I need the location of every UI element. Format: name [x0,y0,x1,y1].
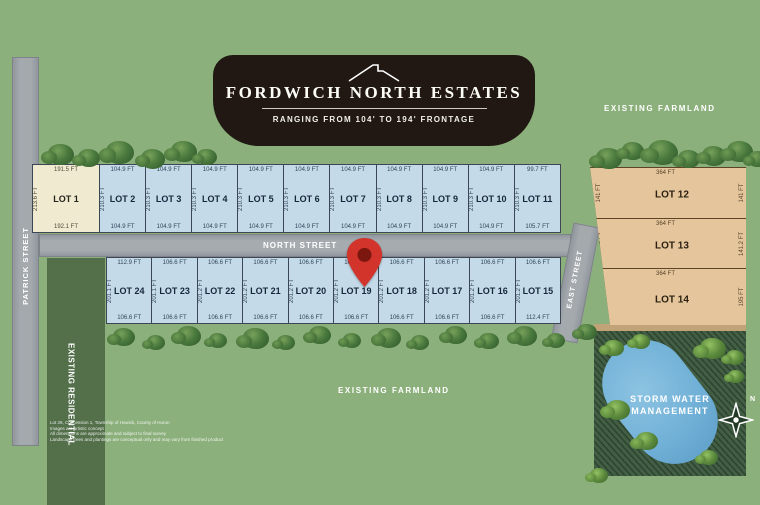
tree-icon [606,400,630,420]
existing-farmland-bottom-label: EXISTING FARMLAND [338,386,450,395]
lot-number-label: LOT 20 [296,286,327,296]
depth-side: 213.6 FT [33,186,39,210]
compass-rose-icon: N [718,402,754,438]
lot-number-label: LOT 23 [159,286,190,296]
frontage-top: 104.9 FT [387,167,411,173]
depth-side: 210.3 FT [284,186,290,210]
tree-icon [48,144,74,165]
lot-lot-3[interactable]: 104.9 FT 210.3 FT LOT 3 104.9 FT [146,165,191,232]
fine-print-line: Landscape trees and plantings are concep… [50,437,223,443]
lot-lot-13[interactable]: 364 FT 141.2 FT LOT 13 141.2 FT [585,219,746,269]
north-street-label: NORTH STREET [263,241,337,250]
frontage-bottom: 104.9 FT [157,224,181,230]
frontage-bottom: 192.1 FT [54,224,78,230]
lot-lot-9[interactable]: 104.9 FT 210.3 FT LOT 9 104.9 FT [423,165,468,232]
frontage-top: 106.6 FT [435,260,459,266]
development-title: FORDWICH NORTH ESTATES [226,83,523,103]
tree-icon [377,328,401,348]
lot-lot-16[interactable]: 106.6 FT 201.2 FT LOT 16 106.6 FT [470,258,514,323]
tree-icon [700,450,718,465]
frontage-top: 364 FT [656,221,675,227]
compass-north-label: N [750,396,755,403]
frontage-top: 99.7 FT [527,167,548,173]
frontage-top: 104.9 FT [111,167,135,173]
tree-icon [513,326,537,346]
lot-number-label: LOT 6 [294,194,320,204]
lot-number-label: LOT 2 [110,194,136,204]
depth-side: 210.3 FT [423,186,429,210]
tree-icon [343,333,361,348]
frontage-top: 106.6 FT [163,260,187,266]
lot-lot-14[interactable]: 364 FT 194.9 FT LOT 14 195 FT [585,269,746,325]
east-lot-column: 364 FT 141 FT LOT 12 141 FT364 FT 141.2 … [585,167,746,325]
lot-lot-7[interactable]: 104.9 FT 210.3 FT LOT 7 104.9 FT [330,165,375,232]
tree-icon [309,326,331,344]
depth-side: 210.3 FT [330,186,336,210]
frontage-bottom: 104.9 FT [433,224,457,230]
depth-side: 210.3 FT [192,186,198,210]
banner-divider [262,108,487,109]
tree-icon [748,151,760,167]
tree-icon [177,326,201,346]
tree-icon [479,333,499,349]
frontage-bottom: 105.7 FT [525,224,549,230]
depth-side: 210.3 FT [469,186,475,210]
lot-number-label: LOT 4 [202,194,228,204]
lot-number-label: LOT 24 [114,286,145,296]
lot-number-label: LOT 9 [432,194,458,204]
tree-icon [547,333,565,348]
frontage-bottom: 104.9 FT [111,224,135,230]
frontage-bottom: 106.6 FT [163,315,187,321]
frontage-bottom: 104.9 FT [341,224,365,230]
tree-icon [113,328,135,346]
lot-lot-15[interactable]: 106.6 FT 201.2 FT LOT 15 112.4 FT [516,258,560,323]
frontage-top: 104.9 FT [203,167,227,173]
tree-icon [728,370,744,383]
depth-side: 201.1 FT [107,278,113,302]
tree-icon [726,350,744,365]
tree-icon [577,324,597,340]
north-street-road: NORTH STREET [39,234,571,257]
tree-icon [604,340,624,356]
depth-side: 210.3 FT [100,186,106,210]
frontage-top: 104.9 FT [341,167,365,173]
frontage-bottom: 106.6 FT [208,315,232,321]
tree-icon [636,432,658,450]
tree-icon [590,468,608,483]
depth-side: 201.2 FT [334,278,340,302]
lot-number-label: LOT 15 [523,286,554,296]
frontage-top: 106.6 FT [390,260,414,266]
tree-icon [141,149,165,169]
frontage-range: RANGING FROM 104' TO 194' FRONTAGE [273,115,475,124]
existing-residential-area: EXISTING RESIDENTIAL [47,258,105,505]
existing-farmland-top-label: EXISTING FARMLAND [604,104,716,113]
lot-number-label: LOT 3 [156,194,182,204]
tree-icon [147,335,165,350]
tree-icon [106,141,134,164]
frontage-bottom: 106.6 FT [344,315,368,321]
frontage-top: 104.9 FT [295,167,319,173]
depth-side: 210.3 FT [515,186,521,210]
depth-right: 141 FT [739,183,745,202]
depth-side: 201.2 FT [516,278,522,302]
lot-lot-17[interactable]: 106.6 FT 201.2 FT LOT 17 106.6 FT [425,258,469,323]
frontage-top: 104.9 FT [433,167,457,173]
lot-number-label: LOT 17 [432,286,463,296]
depth-side: 201.2 FT [289,278,295,302]
frontage-bottom: 106.6 FT [253,315,277,321]
lot-lot-10[interactable]: 104.9 FT 210.3 FT LOT 10 104.9 FT [469,165,514,232]
lot-lot-22[interactable]: 106.6 FT 201.2 FT LOT 22 106.6 FT [198,258,242,323]
frontage-top: 364 FT [656,271,675,277]
depth-side: 201.2 FT [470,278,476,302]
development-banner: FORDWICH NORTH ESTATES RANGING FROM 104'… [213,55,535,146]
lot-number-label: LOT 21 [250,286,281,296]
east-street-label: EAST STREET [566,250,584,309]
lot-lot-12[interactable]: 364 FT 141 FT LOT 12 141 FT [585,168,746,218]
frontage-bottom: 104.9 FT [479,224,503,230]
patrick-street-label: PATRICK STREET [21,227,30,305]
frontage-bottom: 104.9 FT [295,224,319,230]
lot-lot-23[interactable]: 106.6 FT 201.1 FT LOT 23 106.6 FT [152,258,196,323]
frontage-top: 106.6 FT [253,260,277,266]
tree-icon [243,328,269,349]
tree-icon [277,335,295,350]
depth-right: 195 FT [739,288,745,307]
depth-side: 201.2 FT [425,278,431,302]
depth-side: 201.2 FT [198,278,204,302]
depth-side: 210.3 FT [377,186,383,210]
location-pin-icon[interactable] [341,236,388,289]
lot-lot-8[interactable]: 104.9 FT 210.3 FT LOT 8 104.9 FT [377,165,422,232]
lot-number-label: LOT 16 [477,286,508,296]
frontage-bottom: 104.9 FT [249,224,273,230]
lot-number-label: LOT 18 [386,286,417,296]
frontage-bottom: 104.9 FT [203,224,227,230]
frontage-top: 104.9 FT [249,167,273,173]
top-lot-row: 191.5 FT 213.6 FT LOT 1 192.1 FT104.9 FT… [33,165,560,232]
depth-side: 210.3 FT [146,186,152,210]
frontage-bottom: 106.6 FT [299,315,323,321]
lot-lot-2[interactable]: 104.9 FT 210.3 FT LOT 2 104.9 FT [100,165,145,232]
lot-number-label: LOT 8 [386,194,412,204]
frontage-bottom: 106.6 FT [117,315,141,321]
frontage-bottom: 106.6 FT [480,315,504,321]
frontage-bottom: 104.9 FT [387,224,411,230]
lot-number-label: LOT 7 [340,194,366,204]
tree-icon [197,149,217,165]
lot-lot-21[interactable]: 106.6 FT 201.2 FT LOT 21 106.6 FT [243,258,287,323]
depth-left: 141 FT [596,183,602,202]
depth-left: 194.9 FT [596,285,602,309]
depth-side: 201.1 FT [152,278,158,302]
frontage-top: 106.6 FT [299,260,323,266]
lot-number-label: LOT 12 [655,190,689,201]
lot-lot-1[interactable]: 191.5 FT 213.6 FT LOT 1 192.1 FT [33,165,99,232]
bottom-lot-row: 112.9 FT 201.1 FT LOT 24 106.6 FT106.6 F… [107,258,560,323]
lot-number-label: LOT 13 [655,240,689,251]
frontage-top: 106.6 FT [526,260,550,266]
frontage-top: 191.5 FT [54,167,78,173]
tree-icon [209,333,227,348]
tree-icon [445,326,467,344]
frontage-bottom: 112.4 FT [526,315,550,321]
lot-number-label: LOT 10 [476,194,507,204]
house-roof-icon [345,62,403,82]
lot-number-label: LOT 14 [655,294,689,305]
tree-icon [78,149,100,167]
frontage-bottom: 106.6 FT [435,315,459,321]
lot-number-label: LOT 1 [53,194,79,204]
depth-right: 141.2 FT [739,231,745,255]
depth-side: 210.3 FT [238,186,244,210]
depth-side: 201.2 FT [243,278,249,302]
fine-print: Lot 26, Concession 1, Township of Howick… [50,420,223,442]
lot-number-label: LOT 5 [248,194,274,204]
lot-lot-20[interactable]: 106.6 FT 201.2 FT LOT 20 106.6 FT [289,258,333,323]
tree-icon [411,335,429,350]
lot-lot-11[interactable]: 99.7 FT 210.3 FT LOT 11 105.7 FT [515,165,560,232]
frontage-top: 364 FT [656,170,675,176]
lot-lot-4[interactable]: 104.9 FT 210.3 FT LOT 4 104.9 FT [192,165,237,232]
patrick-street-road: PATRICK STREET [12,57,39,446]
lot-lot-24[interactable]: 112.9 FT 201.1 FT LOT 24 106.6 FT [107,258,151,323]
frontage-top: 112.9 FT [117,260,141,266]
lot-lot-5[interactable]: 104.9 FT 210.3 FT LOT 5 104.9 FT [238,165,283,232]
lot-number-label: LOT 22 [205,286,236,296]
frontage-top: 106.6 FT [480,260,504,266]
frontage-top: 106.6 FT [208,260,232,266]
lot-lot-6[interactable]: 104.9 FT 210.3 FT LOT 6 104.9 FT [284,165,329,232]
tree-icon [632,334,650,349]
frontage-top: 104.9 FT [479,167,503,173]
frontage-bottom: 106.6 FT [390,315,414,321]
site-plan-map: PATRICK STREET NORTH STREET EAST STREET … [0,0,760,505]
lot-number-label: LOT 11 [522,194,552,204]
frontage-top: 104.9 FT [157,167,181,173]
